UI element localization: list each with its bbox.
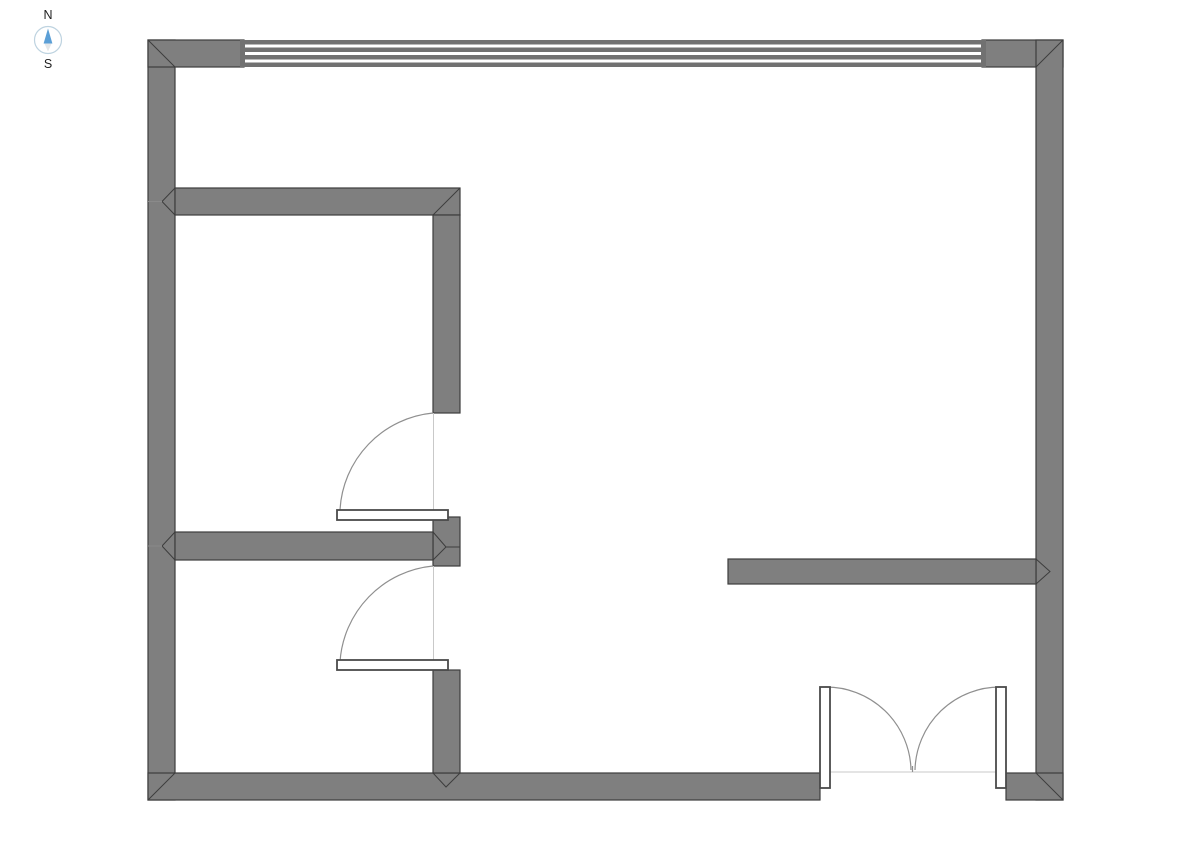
wall-interior-vertical-lower[interactable] xyxy=(433,670,460,773)
wall-exterior-top-left[interactable] xyxy=(148,40,244,67)
floorplan-viewer: N S xyxy=(0,0,1191,842)
wall-exterior-bottom-right[interactable] xyxy=(1006,773,1063,800)
door-leaf-left xyxy=(820,687,830,788)
wall-exterior-bottom-left[interactable] xyxy=(148,773,820,800)
window-jamb-right xyxy=(981,40,986,67)
wall-interior-middle-horizontal[interactable] xyxy=(175,532,433,560)
door-leaf-right xyxy=(996,687,1006,788)
window-jamb-left xyxy=(240,40,245,67)
wall-miter-lines xyxy=(148,40,1063,800)
wall-exterior-left[interactable] xyxy=(148,40,175,800)
door-swing-arc-left xyxy=(825,687,911,770)
wall-interior-right-horizontal[interactable] xyxy=(728,559,1036,584)
door-leaf xyxy=(337,510,448,520)
floorplan-canvas[interactable] xyxy=(0,0,1191,842)
window-top[interactable] xyxy=(240,40,986,67)
door-lower-room[interactable] xyxy=(337,566,448,670)
wall-interior-top-horizontal[interactable] xyxy=(175,188,460,215)
walls-layer xyxy=(148,40,1063,800)
door-swing-arc xyxy=(340,413,433,510)
door-swing-arc-right xyxy=(915,687,1001,770)
wall-interior-vertical-upper[interactable] xyxy=(433,215,460,413)
double-door-entrance[interactable] xyxy=(820,687,1006,788)
door-upper-room[interactable] xyxy=(337,413,448,520)
door-leaf xyxy=(337,660,448,670)
wall-interior-vertical-mid[interactable] xyxy=(433,517,460,566)
door-swing-arc xyxy=(340,566,433,662)
wall-exterior-right[interactable] xyxy=(1036,40,1063,800)
